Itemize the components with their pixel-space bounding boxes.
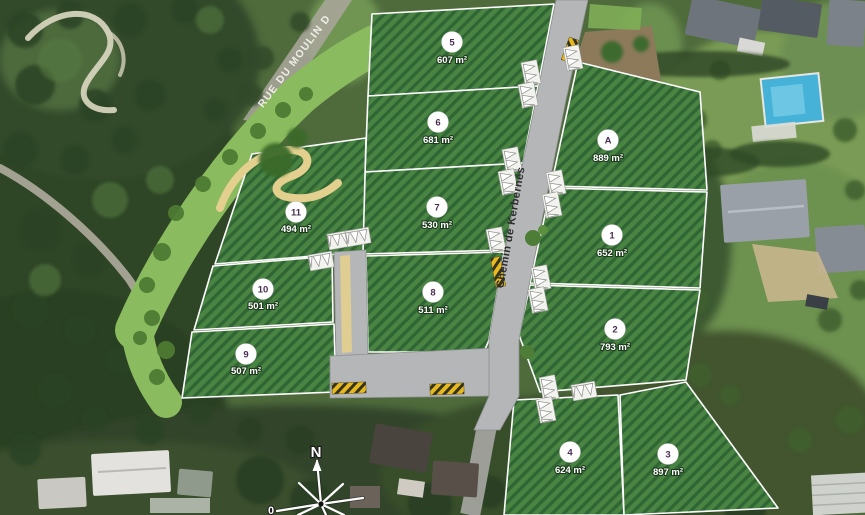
lot-area: 607 m² [437,55,467,66]
lot-area: 511 m² [418,305,448,316]
lot-area: 889 m² [593,153,623,164]
lot-number: A [605,136,612,147]
lot-number: 11 [291,208,302,219]
lot-number: 7 [434,203,439,214]
lot-polygon-9 [182,324,336,398]
site-plan-image: Chemin de Kerbernés RUE DU MOULIN D 5 60… [0,0,865,515]
lot-area: 624 m² [555,465,585,476]
lot-number: 10 [258,285,269,296]
lot-area: 530 m² [422,220,452,231]
lot-area: 793 m² [600,342,630,353]
north-label: N [311,444,322,461]
site-plan-screenshot: Chemin de Kerbernés RUE DU MOULIN D 5 60… [0,0,865,515]
lot-number: 5 [449,38,455,49]
lot-area: 494 m² [281,224,311,235]
swimming-pool [761,73,824,127]
lot-area: 897 m² [653,467,683,478]
lot-number: 1 [609,231,615,242]
lot-area: 507 m² [231,366,261,377]
lot-number: 3 [665,450,670,461]
lot-area: 652 m² [597,248,627,259]
lot-number: 8 [430,288,435,299]
greenhouse [811,473,865,515]
lot-number: 2 [612,325,617,336]
lot-area: 501 m² [248,301,278,312]
lot-number: 6 [435,118,440,129]
lot-number: 4 [567,448,573,459]
scale-zero-label: 0 [268,505,274,515]
lot-number: 9 [243,350,248,361]
lot-area: 681 m² [423,135,453,146]
